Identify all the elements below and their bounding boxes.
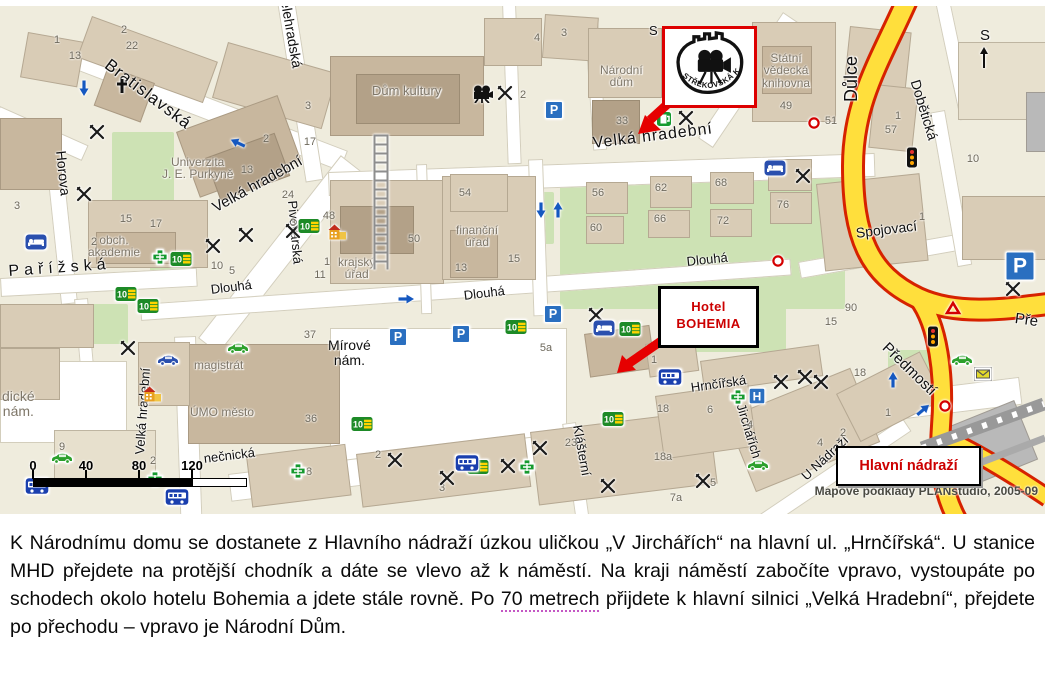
red-circle-icon bbox=[772, 255, 785, 268]
bus-icon bbox=[658, 369, 682, 386]
street-label: Horova bbox=[54, 150, 73, 196]
house-number: 11 bbox=[314, 269, 325, 281]
restaurant-icon bbox=[119, 339, 137, 357]
hlavni-nadrazi-callout: Hlavní nádraží bbox=[836, 446, 981, 486]
svg-text:10: 10 bbox=[139, 302, 149, 312]
hospital-icon: H bbox=[749, 388, 765, 404]
area-label: Národní dům bbox=[600, 64, 643, 89]
house-number: 2 bbox=[520, 89, 526, 101]
atm-icon: 10 bbox=[619, 322, 641, 337]
restaurant-icon bbox=[812, 373, 830, 391]
hotel-bohemia-line2: BOHEMIA bbox=[661, 315, 756, 332]
house-number: 15 bbox=[508, 253, 520, 265]
street-label: S bbox=[980, 28, 990, 44]
house-number: 3 bbox=[561, 27, 567, 39]
house-number: 76 bbox=[777, 199, 789, 211]
restaurant-icon bbox=[496, 84, 514, 102]
street-label: Dlouhá bbox=[463, 284, 506, 302]
area-label: Státní vědecká knihovna bbox=[762, 52, 810, 89]
restaurant-icon bbox=[499, 457, 517, 475]
arrow-icon bbox=[888, 372, 899, 389]
pharmacy-icon bbox=[290, 463, 306, 479]
house-number: 17 bbox=[150, 218, 162, 230]
scale-bar bbox=[33, 478, 247, 487]
svg-text:10: 10 bbox=[300, 222, 310, 232]
taxi-icon bbox=[950, 353, 975, 366]
car-icon bbox=[156, 353, 181, 366]
atm-icon: 10 bbox=[170, 252, 192, 267]
street-label: Pře bbox=[1014, 311, 1039, 330]
cinema-icon bbox=[472, 85, 494, 103]
landmark-icon bbox=[142, 385, 163, 403]
north-arrow-icon bbox=[980, 47, 989, 69]
house-number: 68 bbox=[715, 177, 727, 189]
svg-text:H: H bbox=[753, 390, 762, 404]
area-label: dické nám. bbox=[2, 389, 35, 418]
pharmacy-icon bbox=[730, 389, 746, 405]
house-number: 60 bbox=[590, 222, 602, 234]
atm-icon: 10 bbox=[505, 320, 527, 335]
house-number: 51 bbox=[825, 115, 837, 127]
atm-icon: 10 bbox=[137, 299, 159, 314]
post-icon bbox=[974, 367, 992, 381]
house-number: 90 bbox=[845, 302, 857, 314]
svg-text:10: 10 bbox=[117, 290, 127, 300]
house-number: 15 bbox=[120, 213, 132, 225]
house-number: 2 bbox=[375, 449, 381, 461]
parking-big-icon: P bbox=[1006, 252, 1035, 281]
hotel-bohemia-line1: Hotel bbox=[661, 298, 756, 315]
map-scale: 0 40 80 120 bbox=[26, 458, 266, 494]
pharmacy-icon bbox=[152, 249, 168, 265]
atm-icon: 10 bbox=[115, 287, 137, 302]
svg-text:10: 10 bbox=[353, 420, 363, 430]
strekovska-kamera-logo-box: STŘEKOVSKÁ KAMERA bbox=[662, 26, 757, 108]
strekovska-kamera-logo: STŘEKOVSKÁ KAMERA bbox=[665, 29, 754, 103]
restaurant-icon bbox=[599, 477, 617, 495]
traffic-icon bbox=[907, 148, 917, 169]
street-label: S bbox=[649, 24, 658, 38]
house-number: 36 bbox=[305, 413, 317, 425]
area-label: finanční úřad bbox=[456, 224, 498, 249]
house-number: 4 bbox=[747, 419, 753, 431]
house-number: 8 bbox=[306, 466, 312, 478]
restaurant-icon bbox=[677, 109, 695, 127]
arrow-icon bbox=[553, 202, 564, 219]
red-circle-icon bbox=[939, 400, 952, 413]
house-number: 49 bbox=[780, 100, 792, 112]
restaurant-icon bbox=[794, 167, 812, 185]
parking-icon: P bbox=[452, 325, 470, 343]
house-number: 1 bbox=[324, 256, 330, 268]
restaurant-icon bbox=[204, 237, 222, 255]
red-triangle-icon bbox=[945, 301, 962, 316]
restaurant-icon bbox=[1004, 280, 1022, 298]
house-number: 15 bbox=[825, 316, 837, 328]
hlavni-nadrazi-label: Hlavní nádraží bbox=[859, 458, 957, 474]
house-number: 18 bbox=[657, 403, 669, 415]
svg-text:10: 10 bbox=[172, 255, 182, 265]
restaurant-icon bbox=[386, 451, 404, 469]
restaurant-icon bbox=[531, 439, 549, 457]
house-number: 1 bbox=[919, 211, 925, 223]
house-number: 57 bbox=[885, 124, 897, 136]
page: { "annotations": { "logo_box": { "text":… bbox=[0, 6, 1045, 693]
house-number: 2 bbox=[840, 427, 846, 439]
area-label: ÚMO město bbox=[190, 406, 254, 418]
building bbox=[962, 196, 1045, 260]
restaurant-icon bbox=[88, 123, 106, 141]
traffic-icon bbox=[928, 327, 938, 348]
house-number: 5a bbox=[540, 342, 552, 354]
street-label: Důlce bbox=[842, 56, 861, 102]
restaurant-icon bbox=[772, 373, 790, 391]
parking-icon: P bbox=[389, 328, 407, 346]
svg-text:10: 10 bbox=[507, 323, 517, 333]
house-number: 1 bbox=[54, 34, 60, 46]
house-number: 2 bbox=[91, 236, 97, 248]
house-number: 6 bbox=[707, 404, 713, 416]
bus-icon bbox=[455, 455, 479, 472]
house-number: 13 bbox=[241, 164, 253, 176]
house-number: 33 bbox=[616, 115, 628, 127]
house-number: 66 bbox=[654, 213, 666, 225]
building bbox=[356, 74, 460, 124]
stairs-icon bbox=[374, 135, 389, 270]
hotel-bohemia-callout: Hotel BOHEMIA bbox=[658, 286, 759, 348]
landmark-icon bbox=[327, 223, 348, 241]
building bbox=[0, 304, 94, 348]
restaurant-icon bbox=[75, 185, 93, 203]
house-number: 22 bbox=[126, 40, 138, 52]
house-number: 48 bbox=[323, 210, 335, 222]
house-number: 10 bbox=[211, 260, 223, 272]
house-number: 13 bbox=[455, 262, 467, 274]
directions-distance-underlined: 70 metrech bbox=[501, 588, 600, 612]
house-number: 50 bbox=[408, 233, 420, 245]
house-number: 24 bbox=[282, 189, 294, 201]
house-number: 23 bbox=[565, 437, 577, 449]
atm-icon: 10 bbox=[602, 412, 624, 427]
house-number: 1 bbox=[895, 110, 901, 122]
parking-icon: P bbox=[545, 101, 563, 119]
building bbox=[1026, 92, 1045, 152]
svg-text:10: 10 bbox=[604, 415, 614, 425]
restaurant-icon bbox=[438, 469, 456, 487]
area-label: krajský úřad bbox=[338, 256, 375, 281]
house-number: 4 bbox=[534, 32, 540, 44]
directions-paragraph: K Národnímu domu se dostanete z Hlavního… bbox=[10, 529, 1035, 641]
hotel-icon bbox=[593, 320, 615, 336]
house-number: 56 bbox=[592, 187, 604, 199]
house-number: 1 bbox=[885, 407, 891, 419]
restaurant-icon bbox=[237, 226, 255, 244]
house-number: 3 bbox=[305, 100, 311, 112]
area-label: Univerzita J. E. Purkyně bbox=[162, 156, 233, 181]
house-number: 2 bbox=[263, 133, 269, 145]
hotel-icon bbox=[764, 160, 786, 176]
taxi-icon bbox=[746, 458, 771, 471]
house-number: 10 bbox=[967, 153, 979, 165]
house-number: 3 bbox=[14, 200, 20, 212]
atm-icon: 10 bbox=[298, 219, 320, 234]
parking-icon: P bbox=[544, 305, 562, 323]
house-number: 7a bbox=[670, 492, 682, 504]
house-number: 2 bbox=[121, 24, 127, 36]
arrow-icon bbox=[398, 294, 415, 305]
house-number: 72 bbox=[717, 215, 729, 227]
hotel-icon bbox=[25, 234, 47, 250]
arrow-icon bbox=[536, 202, 547, 219]
area-label: magistrát bbox=[194, 359, 243, 371]
map-credit: Mapové podklady PLANstudio, 2005-09 bbox=[748, 484, 1038, 498]
house-number: 1 bbox=[651, 354, 657, 366]
house-number: 37 bbox=[304, 329, 316, 341]
city-map: STŘEKOVSKÁ KAMERA Hotel BOHEMIA Hlavní n… bbox=[0, 6, 1045, 514]
red-circle-icon bbox=[808, 117, 821, 130]
taxi-icon bbox=[226, 341, 251, 354]
pub-icon bbox=[657, 112, 672, 127]
church-icon bbox=[115, 78, 129, 94]
street-label: Mírové nám. bbox=[328, 338, 371, 367]
restaurant-icon bbox=[694, 472, 712, 490]
house-number: 54 bbox=[459, 187, 471, 199]
pharmacy-icon bbox=[519, 459, 535, 475]
house-number: 17 bbox=[304, 136, 316, 148]
house-number: 5 bbox=[229, 265, 235, 277]
arrow-icon bbox=[79, 80, 90, 97]
house-number: 62 bbox=[655, 182, 667, 194]
area-label: Dům kultury bbox=[372, 84, 441, 98]
house-number: 13 bbox=[69, 50, 81, 62]
atm-icon: 10 bbox=[351, 417, 373, 432]
house-number: 18 bbox=[854, 367, 866, 379]
svg-text:10: 10 bbox=[621, 325, 631, 335]
house-number: 18a bbox=[654, 451, 672, 463]
house-number: 4 bbox=[817, 437, 823, 449]
